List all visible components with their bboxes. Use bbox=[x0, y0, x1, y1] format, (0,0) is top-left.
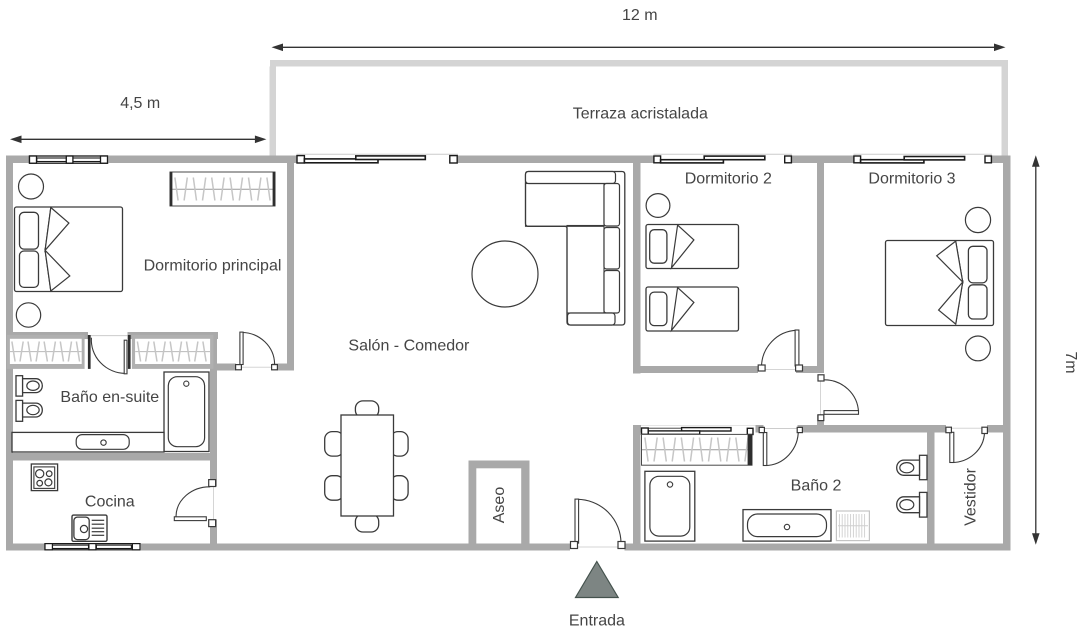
svg-text:Dormitorio 2: Dormitorio 2 bbox=[685, 170, 772, 187]
svg-text:7m: 7m bbox=[1062, 351, 1079, 373]
svg-text:Salón - Comedor: Salón - Comedor bbox=[348, 338, 470, 355]
svg-text:Dormitorio principal: Dormitorio principal bbox=[144, 257, 282, 274]
svg-text:Dormitorio 3: Dormitorio 3 bbox=[868, 171, 955, 188]
svg-text:Entrada: Entrada bbox=[569, 613, 625, 630]
svg-text:Cocina: Cocina bbox=[85, 493, 135, 510]
svg-text:4,5 m: 4,5 m bbox=[120, 95, 160, 112]
svg-text:Baño en-suite: Baño en-suite bbox=[60, 389, 159, 406]
svg-text:Baño 2: Baño 2 bbox=[791, 477, 842, 494]
svg-text:12 m: 12 m bbox=[622, 7, 658, 24]
svg-text:Terraza acristalada: Terraza acristalada bbox=[573, 105, 708, 122]
svg-text:Aseo: Aseo bbox=[491, 487, 508, 524]
svg-text:Vestidor: Vestidor bbox=[963, 467, 980, 525]
